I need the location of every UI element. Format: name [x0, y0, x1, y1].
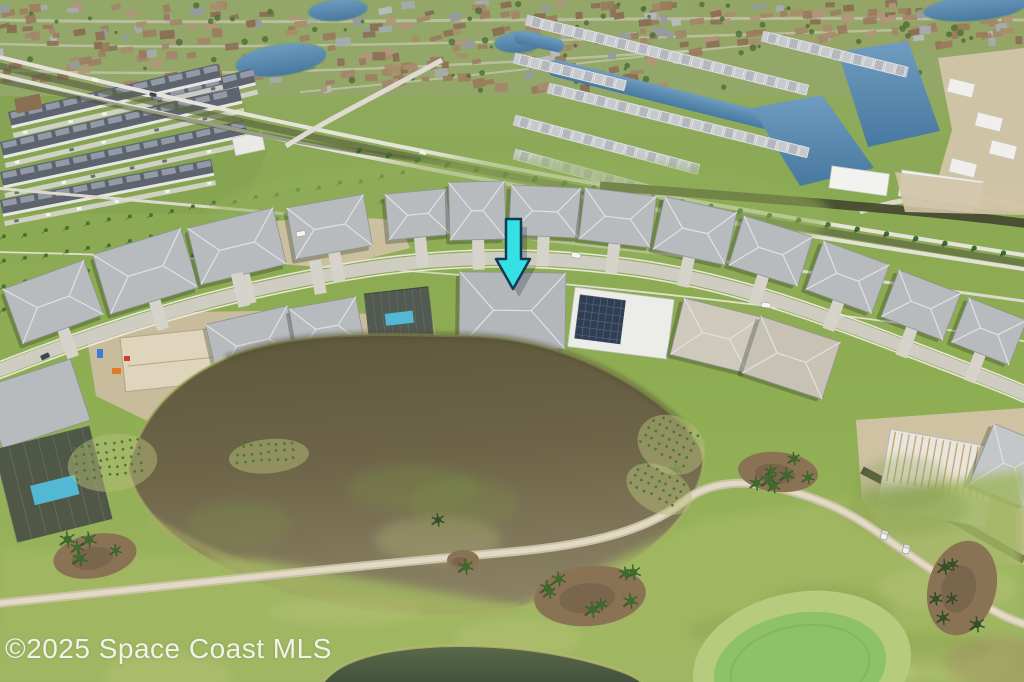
- modern-solar-house: [568, 287, 675, 359]
- mls-watermark: ©2025 Space Coast MLS: [5, 633, 332, 665]
- aerial-scene-canvas: [0, 0, 1024, 682]
- aerial-photo: ©2025 Space Coast MLS: [0, 0, 1024, 682]
